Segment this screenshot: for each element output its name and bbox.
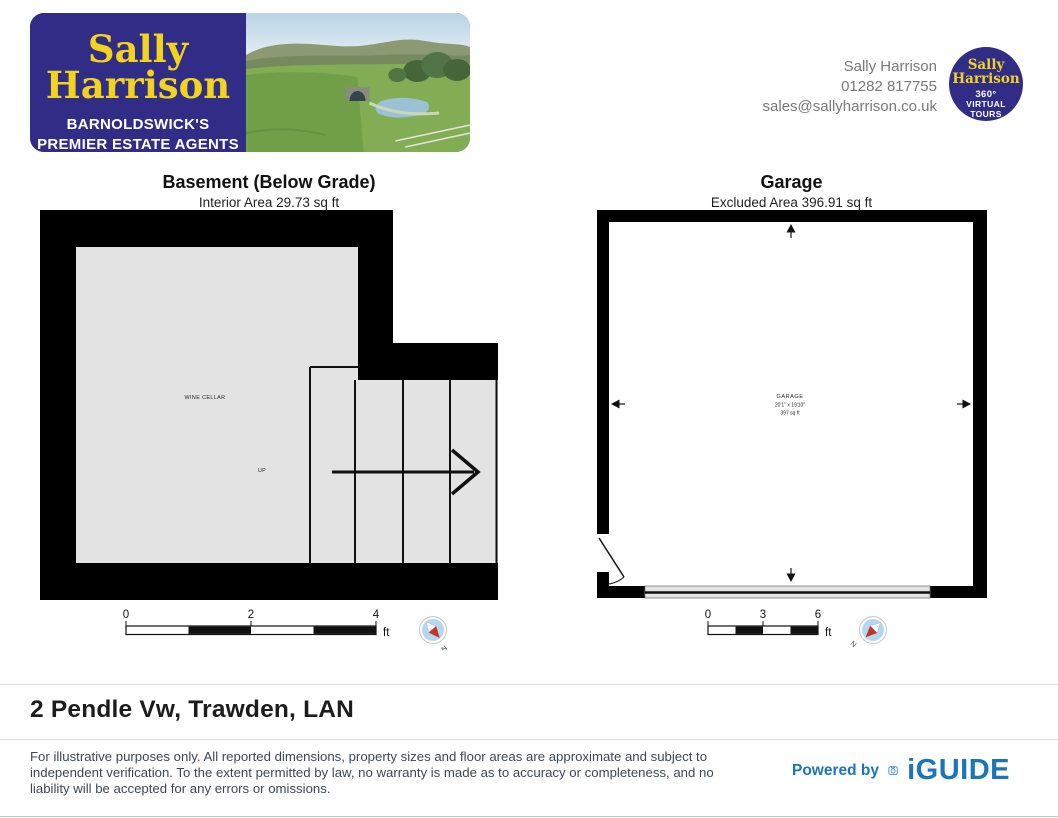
page-bottom-edge [0, 816, 1058, 817]
garage-scale-unit: ft [825, 627, 832, 639]
powered-by-block: Powered by iGUIDE [792, 753, 1010, 788]
basement-scale-tickmarks [126, 621, 376, 626]
property-address: 2 Pendle Vw, Trawden, LAN [30, 696, 354, 724]
footer-top-divider [0, 684, 1058, 685]
garage-scale-seg-black1 [736, 627, 764, 634]
basement-area: Interior Area 29.73 sq ft [40, 195, 498, 210]
agency-logo: Sally Harrison BARNOLDSWICK'S PREMIER ES… [30, 13, 470, 152]
contact-phone: 01282 817755 [763, 77, 937, 97]
agency-name-line2: Harrison [30, 68, 246, 104]
badge-name-line2: Harrison [949, 73, 1023, 87]
garage-compass-icon [860, 617, 887, 644]
garage-room-label: GARAGE [777, 394, 804, 400]
garage-title: Garage [594, 173, 989, 193]
garage-scale-tick-1: 3 [760, 609, 766, 621]
wine-cellar-floor [76, 247, 358, 563]
basement-scale-seg-black1 [189, 627, 252, 634]
agency-tagline-line1: BARNOLDSWICK'S [30, 115, 246, 135]
basement-header: Basement (Below Grade) Interior Area 29.… [40, 173, 498, 210]
garage-scale-tick-2: 6 [815, 609, 821, 621]
agency-tagline: BARNOLDSWICK'S PREMIER ESTATE AGENTS [30, 115, 246, 152]
basement-title: Basement (Below Grade) [40, 173, 498, 193]
up-label: UP [258, 468, 266, 474]
badge-tours: TOURS [949, 110, 1023, 120]
garage-header: Garage Excluded Area 396.91 sq ft [594, 173, 989, 210]
garage-room-area: 397 sq ft [780, 411, 800, 417]
basement-scale-tick-0: 0 [123, 609, 129, 621]
basement-scalebar: 0 2 4 ft N [110, 606, 460, 650]
contact-email: sales@sallyharrison.co.uk [763, 97, 937, 117]
countryside-photo [246, 13, 470, 152]
basement-scale-tick-1: 2 [248, 609, 254, 621]
iguide-wordmark: iGUIDE [907, 756, 1010, 785]
agency-logo-text-panel: Sally Harrison BARNOLDSWICK'S PREMIER ES… [30, 13, 246, 152]
footer-mid-divider [0, 739, 1058, 740]
garage-scale-seg-black2 [791, 627, 819, 634]
garage-floorplan: GARAGE 20'1" x 19'10" 397 sq ft [597, 208, 989, 600]
garage-scalebar: 0 3 6 ft N [690, 606, 910, 650]
powered-by-label: Powered by [792, 762, 879, 780]
basement-floorplan: WINE CELLAR UP [40, 210, 498, 600]
basement-scale-seg-black2 [314, 627, 377, 634]
basement-scale-unit: ft [383, 627, 390, 639]
iguide-logo-icon [888, 753, 898, 788]
basement-compass-icon [420, 617, 447, 644]
side-door-opening [597, 534, 609, 572]
garage-scale-tickmarks [708, 621, 818, 626]
garage-scale-tick-0: 0 [705, 609, 711, 621]
disclaimer-text: For illustrative purposes only. All repo… [30, 749, 752, 797]
garage-room-dimensions: 20'1" x 19'10" [775, 403, 805, 409]
virtual-tours-badge: Sally Harrison 360° VIRTUAL TOURS [949, 47, 1023, 121]
basement-compass-north-label: N [439, 643, 447, 650]
basement-scale-tick-2: 4 [373, 609, 380, 621]
agency-tagline-line2: PREMIER ESTATE AGENTS [30, 135, 246, 152]
garage-compass-north-label: N [850, 639, 859, 648]
wine-cellar-label: WINE CELLAR [185, 395, 226, 401]
contact-name: Sally Harrison [763, 57, 937, 77]
contact-block: Sally Harrison 01282 817755 sales@sallyh… [763, 57, 937, 117]
floorplan-page: Sally Harrison BARNOLDSWICK'S PREMIER ES… [0, 0, 1058, 818]
